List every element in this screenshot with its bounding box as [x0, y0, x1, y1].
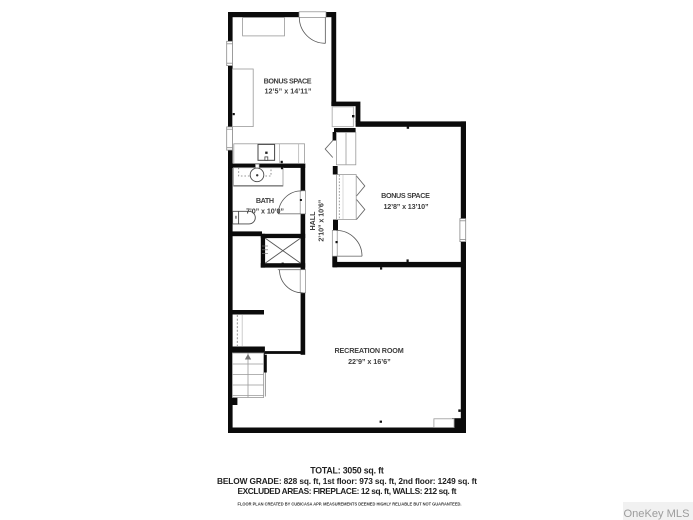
svg-text:OneKey MLS: OneKey MLS	[624, 508, 690, 520]
svg-text:12’5” x 14’11”: 12’5” x 14’11”	[265, 87, 312, 96]
svg-text:EXCLUDED AREAS: FIREPLACE: 12: EXCLUDED AREAS: FIREPLACE: 12 sq. ft, WA…	[238, 486, 457, 496]
svg-text:FLOOR PLAN CREATED BY CUBICASA: FLOOR PLAN CREATED BY CUBICASA APP. MEAS…	[238, 502, 462, 507]
svg-text:7’0” x 10’0”: 7’0” x 10’0”	[246, 206, 284, 215]
svg-text:2’10” x 10’6”: 2’10” x 10’6”	[317, 199, 326, 241]
svg-text:BATH: BATH	[256, 196, 274, 205]
svg-text:22’9” x 16’6”: 22’9” x 16’6”	[348, 357, 391, 366]
svg-text:12’8” x 13’10”: 12’8” x 13’10”	[383, 202, 429, 211]
svg-text:BONUS SPACE: BONUS SPACE	[264, 76, 312, 85]
svg-text:BONUS SPACE: BONUS SPACE	[381, 191, 430, 200]
svg-text:TOTAL: 3050 sq. ft: TOTAL: 3050 sq. ft	[310, 465, 384, 475]
svg-text:BELOW GRADE: 828 sq. ft, 1st f: BELOW GRADE: 828 sq. ft, 1st floor: 973 …	[217, 476, 477, 486]
svg-text:RECREATION ROOM: RECREATION ROOM	[335, 346, 404, 355]
